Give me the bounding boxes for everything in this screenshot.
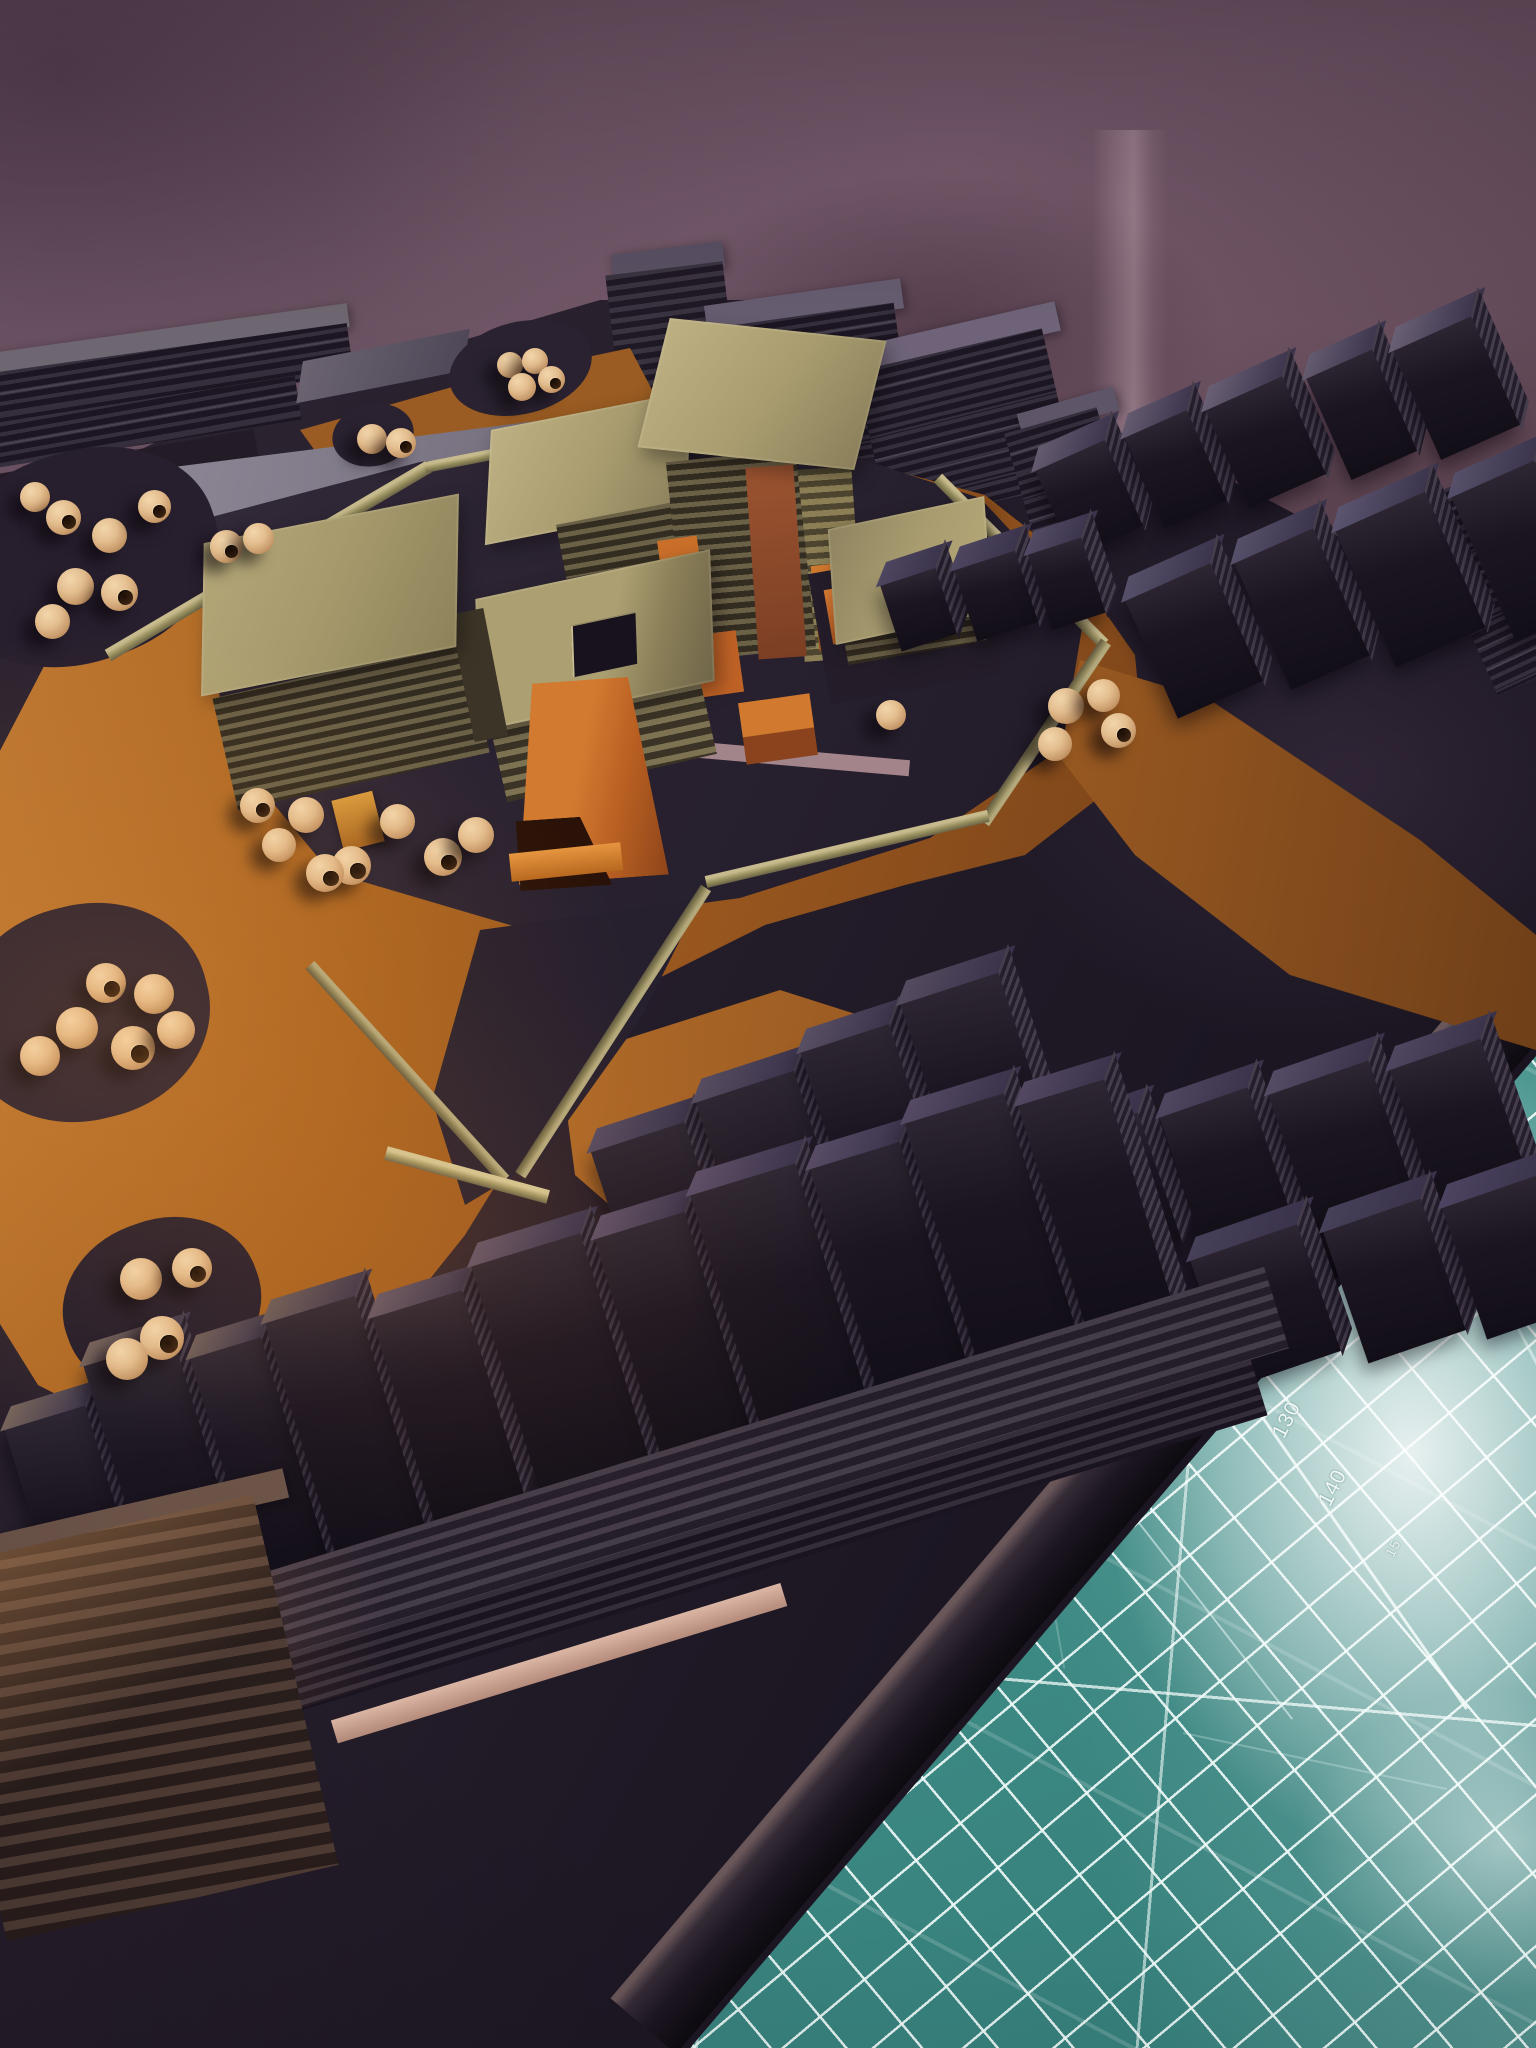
tree-bead [458,817,494,853]
bead-hole [153,505,166,518]
tree-bead [56,1007,98,1049]
tree-bead [138,490,171,523]
tree-bead [1038,727,1072,761]
tree-bead [57,568,94,605]
bead-hole [118,590,133,605]
bead-hole [131,1045,149,1063]
tree-bead [876,700,906,730]
tree-bead [20,482,50,512]
bead-hole [550,378,561,389]
tree-bead [157,1011,195,1049]
tree-bead [1048,688,1084,724]
bead-hole [1117,728,1131,742]
tree-bead [35,604,70,639]
tree-bead [508,373,536,401]
bead-hole [441,855,456,870]
bead-hole [190,1266,206,1282]
tree-bead [306,854,344,892]
tree-bead [111,1026,155,1070]
tree-bead [86,963,126,1003]
bead-hole [350,863,366,879]
tree-bead [243,523,274,554]
bead-hole [323,871,338,886]
bead-hole [225,545,238,558]
tree-bead [1087,679,1120,712]
tree-bead [20,1036,60,1076]
tree-bead [106,1338,148,1380]
tree-bead [120,1258,162,1300]
tree-bead [424,838,462,876]
tree-beads-layer [0,0,1536,2048]
tree-bead [92,518,127,553]
tree-bead [210,530,243,563]
tree-bead [172,1248,212,1288]
tree-bead [288,797,324,833]
tree-bead [538,366,565,393]
tree-bead [101,574,138,611]
bead-hole [62,515,76,529]
tree-bead [46,500,81,535]
tree-bead [380,804,415,839]
photo-architectural-model-scene: 130 140 15 [0,0,1536,2048]
tree-bead [357,424,387,454]
tree-bead [240,788,275,823]
bead-hole [104,981,120,997]
tree-bead [262,828,296,862]
tree-bead [1101,713,1136,748]
bead-hole [160,1335,178,1353]
tree-bead [134,974,174,1014]
bead-hole [400,441,412,453]
tree-bead [386,428,416,458]
bead-hole [256,803,270,817]
